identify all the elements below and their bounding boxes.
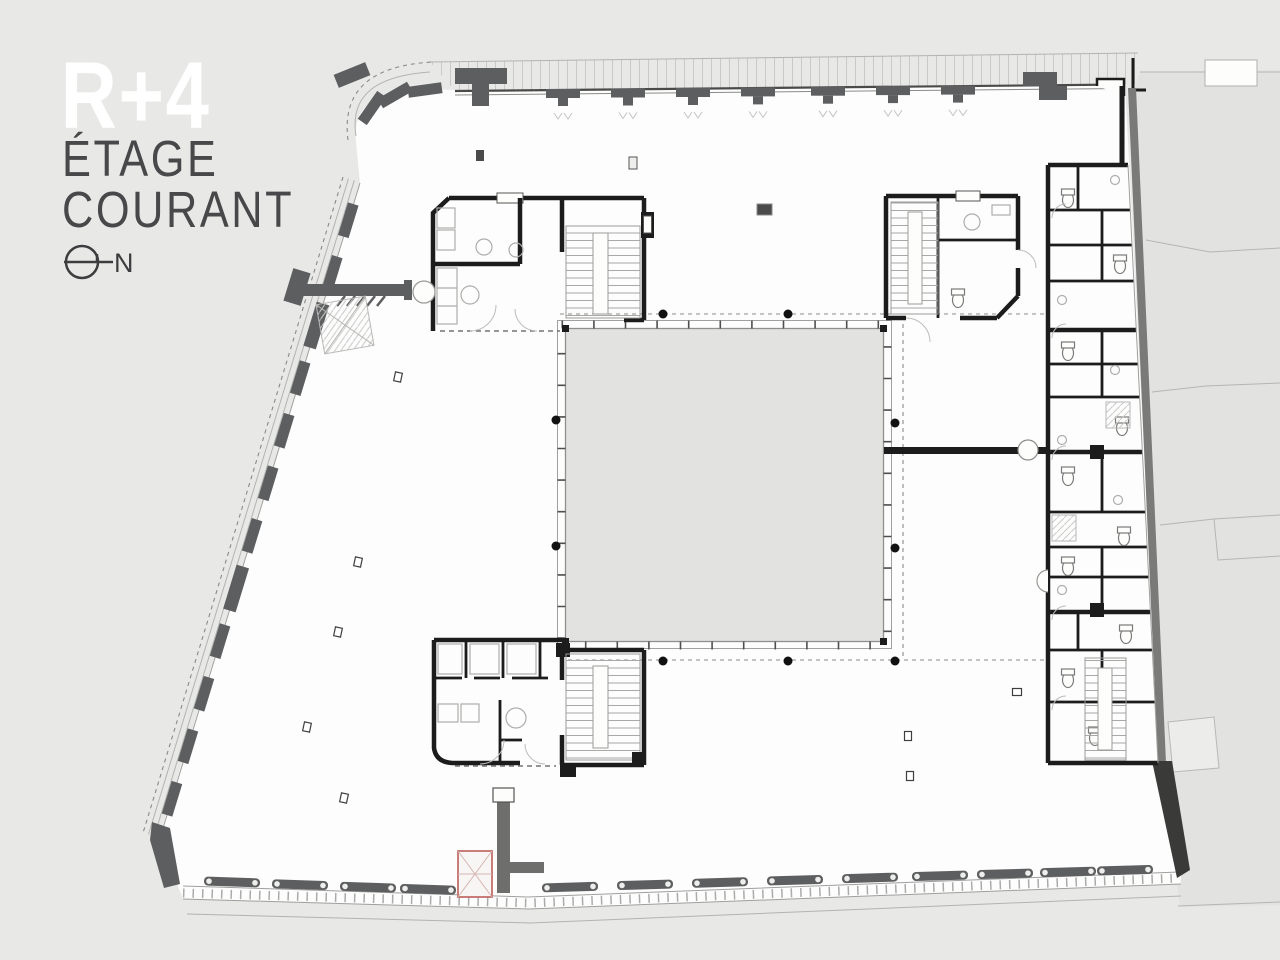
entrance-column bbox=[413, 281, 435, 303]
north-label: N bbox=[114, 248, 134, 278]
courtyard-void bbox=[566, 329, 884, 642]
floor-plan-drawing: R+4 ÉTAGE COURANT N bbox=[0, 0, 1280, 960]
subtitle-line-1: ÉTAGE bbox=[62, 131, 218, 188]
roof-slab-piece bbox=[1205, 60, 1257, 86]
stairwell-b bbox=[556, 643, 644, 777]
canopy-glass bbox=[316, 296, 374, 354]
subtitle-line-2: COURANT bbox=[62, 182, 294, 239]
south-wall-stub bbox=[497, 795, 510, 893]
